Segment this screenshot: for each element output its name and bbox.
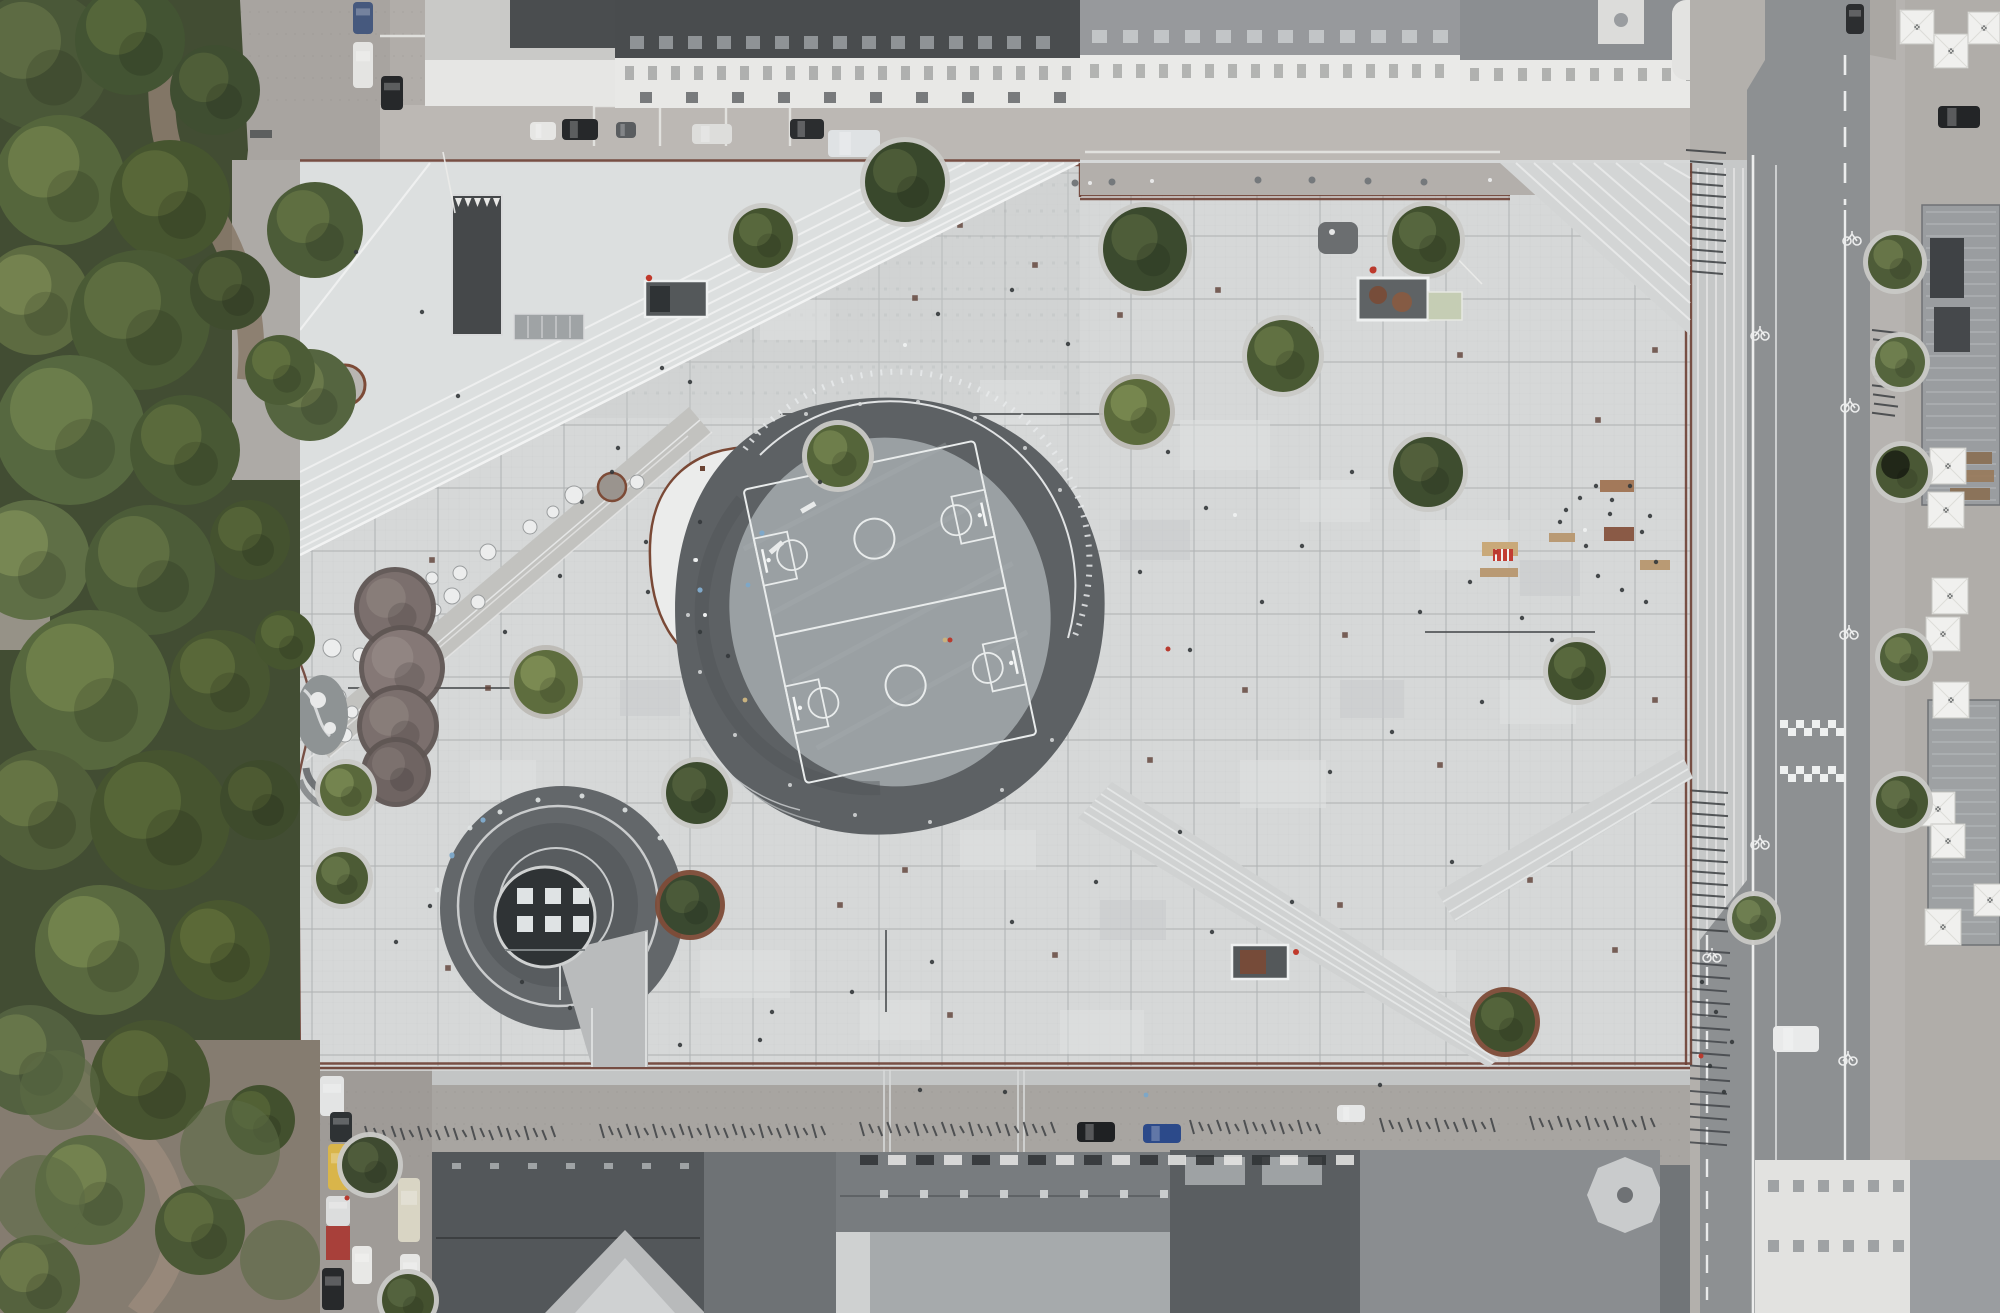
park (0, 0, 363, 1313)
aerial-photo-canvas (0, 0, 2000, 1313)
right-road-zone (1684, 0, 2000, 1313)
screenshot-root (0, 0, 2000, 1313)
